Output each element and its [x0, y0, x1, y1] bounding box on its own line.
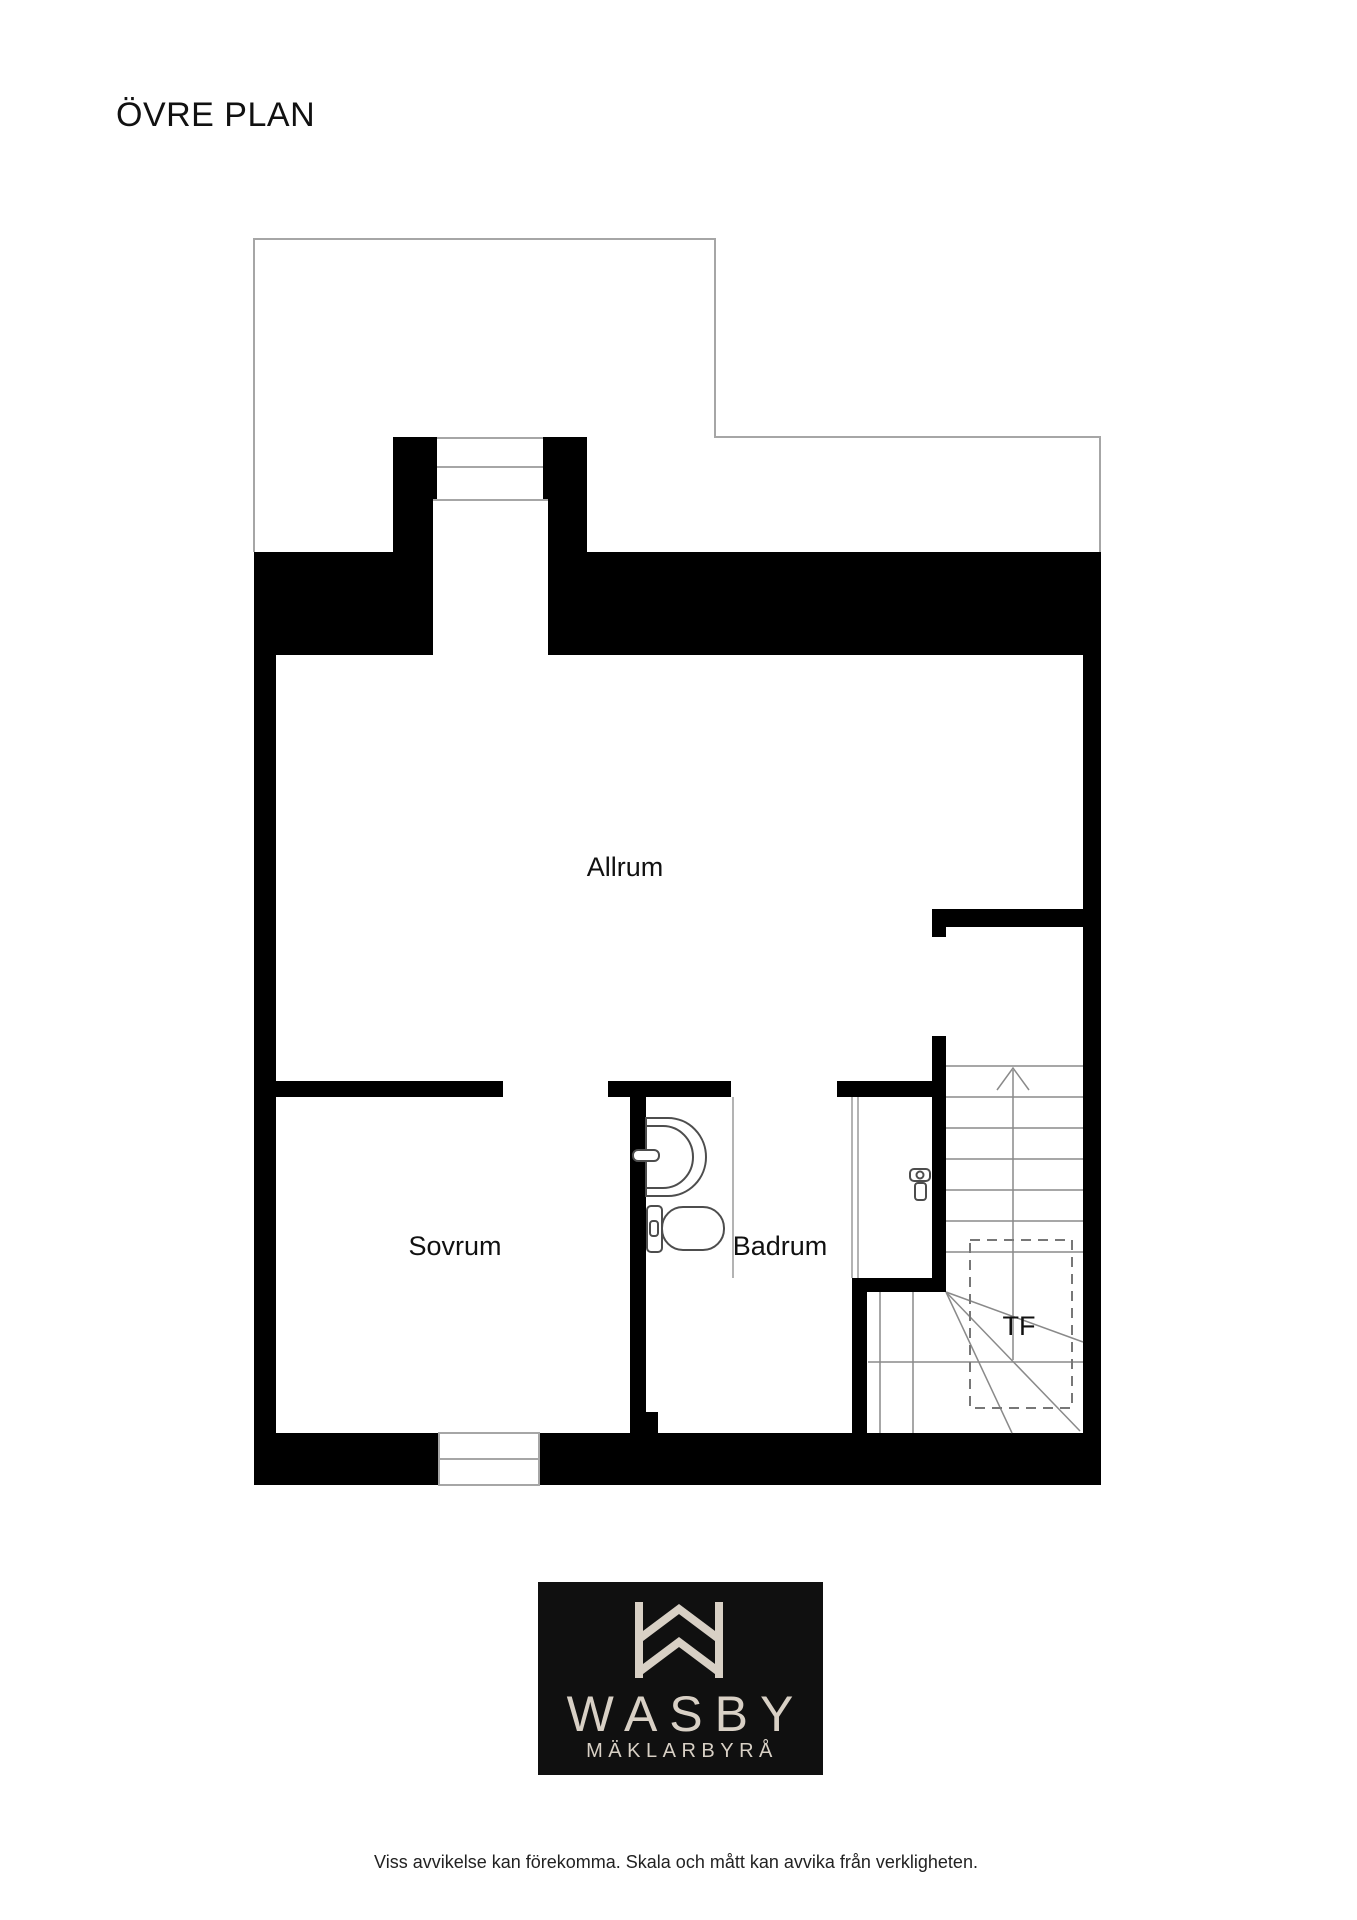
wall-stair-enclosure-horizontal: [852, 1278, 946, 1292]
wall-divider-foot-step: [646, 1412, 658, 1433]
toilet-flush-button: [650, 1221, 658, 1236]
wall-badrum-top-right: [837, 1081, 932, 1097]
floor-plan-svg: ÖVRE PLAN: [0, 0, 1357, 1920]
terrace-door-lower-opening: [433, 500, 548, 655]
terrace-outline: [254, 239, 1100, 552]
wall-badrum-top-left: [608, 1081, 731, 1097]
sink-faucet: [633, 1150, 659, 1161]
wall-bottom-band: [254, 1433, 1101, 1485]
shower-mixer-icon: [910, 1169, 930, 1200]
wall-door-stub-right: [543, 437, 587, 555]
disclaimer-text: Viss avvikelse kan förekomma. Skala och …: [374, 1852, 978, 1872]
agency-logo: WASBY MÄKLARBYRÅ: [538, 1582, 823, 1775]
page-title: ÖVRE PLAN: [116, 96, 315, 134]
room-label-tf: TF: [1003, 1311, 1036, 1341]
wall-left-exterior: [254, 655, 276, 1435]
logo-tagline-text: MÄKLARBYRÅ: [586, 1739, 778, 1762]
wall-stair-enclosure-vertical: [852, 1292, 867, 1433]
terrace-boundary-line: [254, 239, 1100, 552]
room-label-allrum: Allrum: [587, 852, 664, 882]
wall-badrum-stairs-divider: [932, 1036, 946, 1292]
logo-texts: WASBY MÄKLARBYRÅ: [567, 1686, 806, 1762]
door-openings: [433, 437, 548, 1485]
room-label-sovrum: Sovrum: [408, 1231, 501, 1261]
terrace-door-upper-opening: [437, 437, 543, 501]
floorplan-page: ÖVRE PLAN: [0, 0, 1357, 1920]
wall-stair-landing-stub: [932, 909, 1083, 927]
room-label-badrum: Badrum: [733, 1231, 828, 1261]
logo-brand-text: WASBY: [567, 1686, 806, 1742]
wall-stair-landing-tab: [932, 927, 946, 937]
stairs: [868, 1066, 1083, 1433]
toilet-icon: [647, 1206, 724, 1252]
wall-sovrum-top: [276, 1081, 503, 1097]
mixer-spout: [915, 1183, 926, 1200]
walls: [254, 437, 1101, 1485]
wall-sovrum-badrum-divider: [630, 1097, 646, 1433]
toilet-bowl: [662, 1207, 724, 1250]
wall-right-exterior: [1083, 655, 1101, 1435]
wall-door-stub-left: [393, 437, 437, 555]
wall-top-band: [254, 552, 1101, 655]
